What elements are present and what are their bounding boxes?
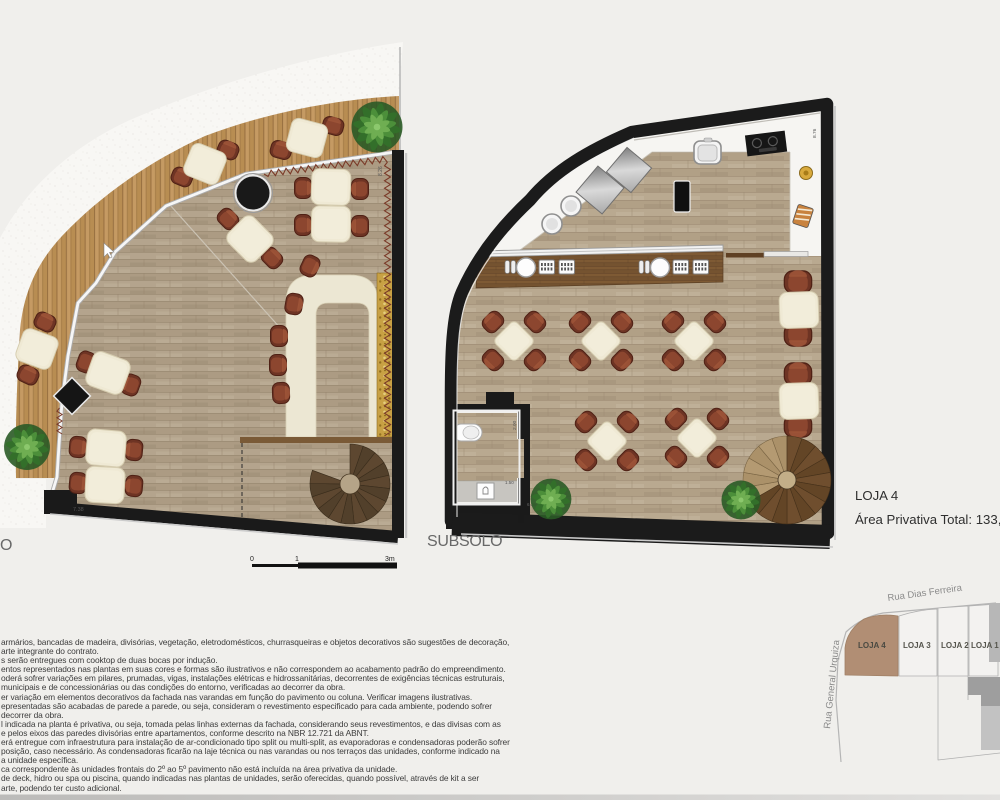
svg-text:LOJA 4: LOJA 4 — [858, 641, 886, 650]
svg-text:2.00: 2.00 — [512, 420, 518, 430]
svg-text:3m: 3m — [385, 556, 395, 563]
svg-text:SUBSOLO: SUBSOLO — [427, 533, 502, 550]
svg-text:0: 0 — [250, 556, 254, 563]
svg-text:7.38: 7.38 — [73, 507, 84, 513]
svg-text:LOJA 1: LOJA 1 — [971, 641, 999, 650]
svg-text:8.26: 8.26 — [378, 166, 384, 176]
svg-text:LOJA 2: LOJA 2 — [941, 641, 969, 650]
svg-text:LOJA 4: LOJA 4 — [855, 488, 898, 503]
svg-text:Área Privativa Total: 133,70m²: Área Privativa Total: 133,70m² — [855, 512, 1000, 527]
svg-text:1: 1 — [295, 556, 299, 563]
svg-text:O: O — [0, 537, 12, 554]
svg-text:1.50: 1.50 — [505, 480, 514, 485]
svg-text:8.76: 8.76 — [812, 128, 818, 138]
svg-text:LOJA 3: LOJA 3 — [903, 641, 931, 650]
